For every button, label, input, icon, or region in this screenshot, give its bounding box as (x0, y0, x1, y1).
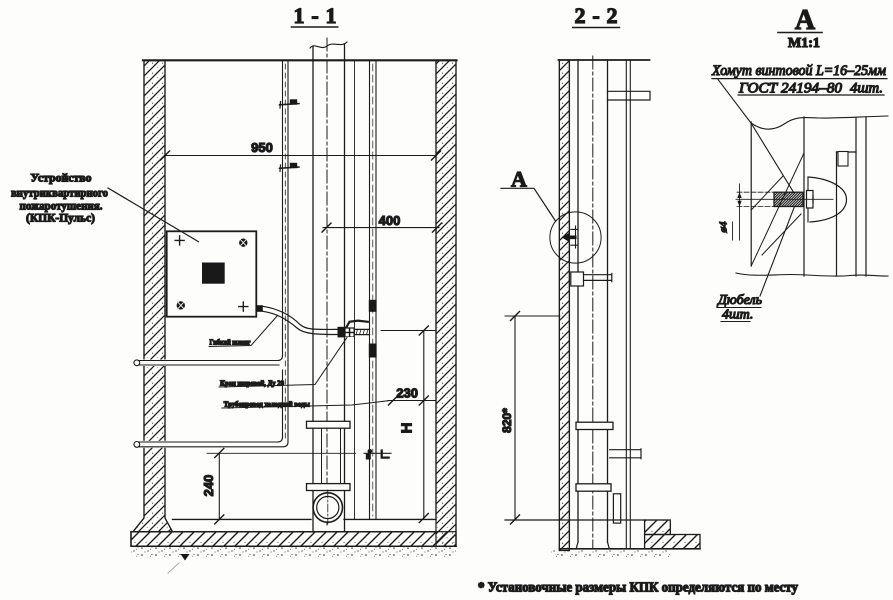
svg-text:400: 400 (379, 213, 401, 228)
svg-text:* Установочные размеры КПК опр: * Установочные размеры КПК определяются … (478, 581, 798, 596)
svg-text:внутриквартирного: внутриквартирного (11, 186, 108, 200)
svg-text:ø4: ø4 (718, 221, 730, 234)
svg-text:Хомут винтовой L=16–25мм: Хомут винтовой L=16–25мм (711, 63, 886, 79)
svg-text:ГОСТ 24194–80: ГОСТ 24194–80 (738, 81, 843, 97)
svg-text:4шт.: 4шт. (850, 81, 883, 97)
svg-text:820*: 820* (500, 408, 514, 433)
svg-text:950: 950 (251, 140, 273, 155)
svg-text:А: А (795, 5, 816, 36)
svg-text:(КПК-Пульс): (КПК-Пульс) (26, 211, 95, 225)
svg-text:Н: Н (399, 423, 416, 434)
svg-text:230: 230 (396, 386, 418, 401)
svg-text:4шт.: 4шт. (722, 308, 753, 323)
svg-text:2 - 2: 2 - 2 (575, 3, 618, 28)
svg-text:Устройство: Устройство (31, 171, 92, 185)
svg-text:1 - 1: 1 - 1 (294, 3, 337, 28)
svg-text:Дюбель: Дюбель (716, 293, 762, 308)
svg-text:М1:1: М1:1 (788, 36, 820, 51)
svg-text:240: 240 (201, 475, 216, 497)
